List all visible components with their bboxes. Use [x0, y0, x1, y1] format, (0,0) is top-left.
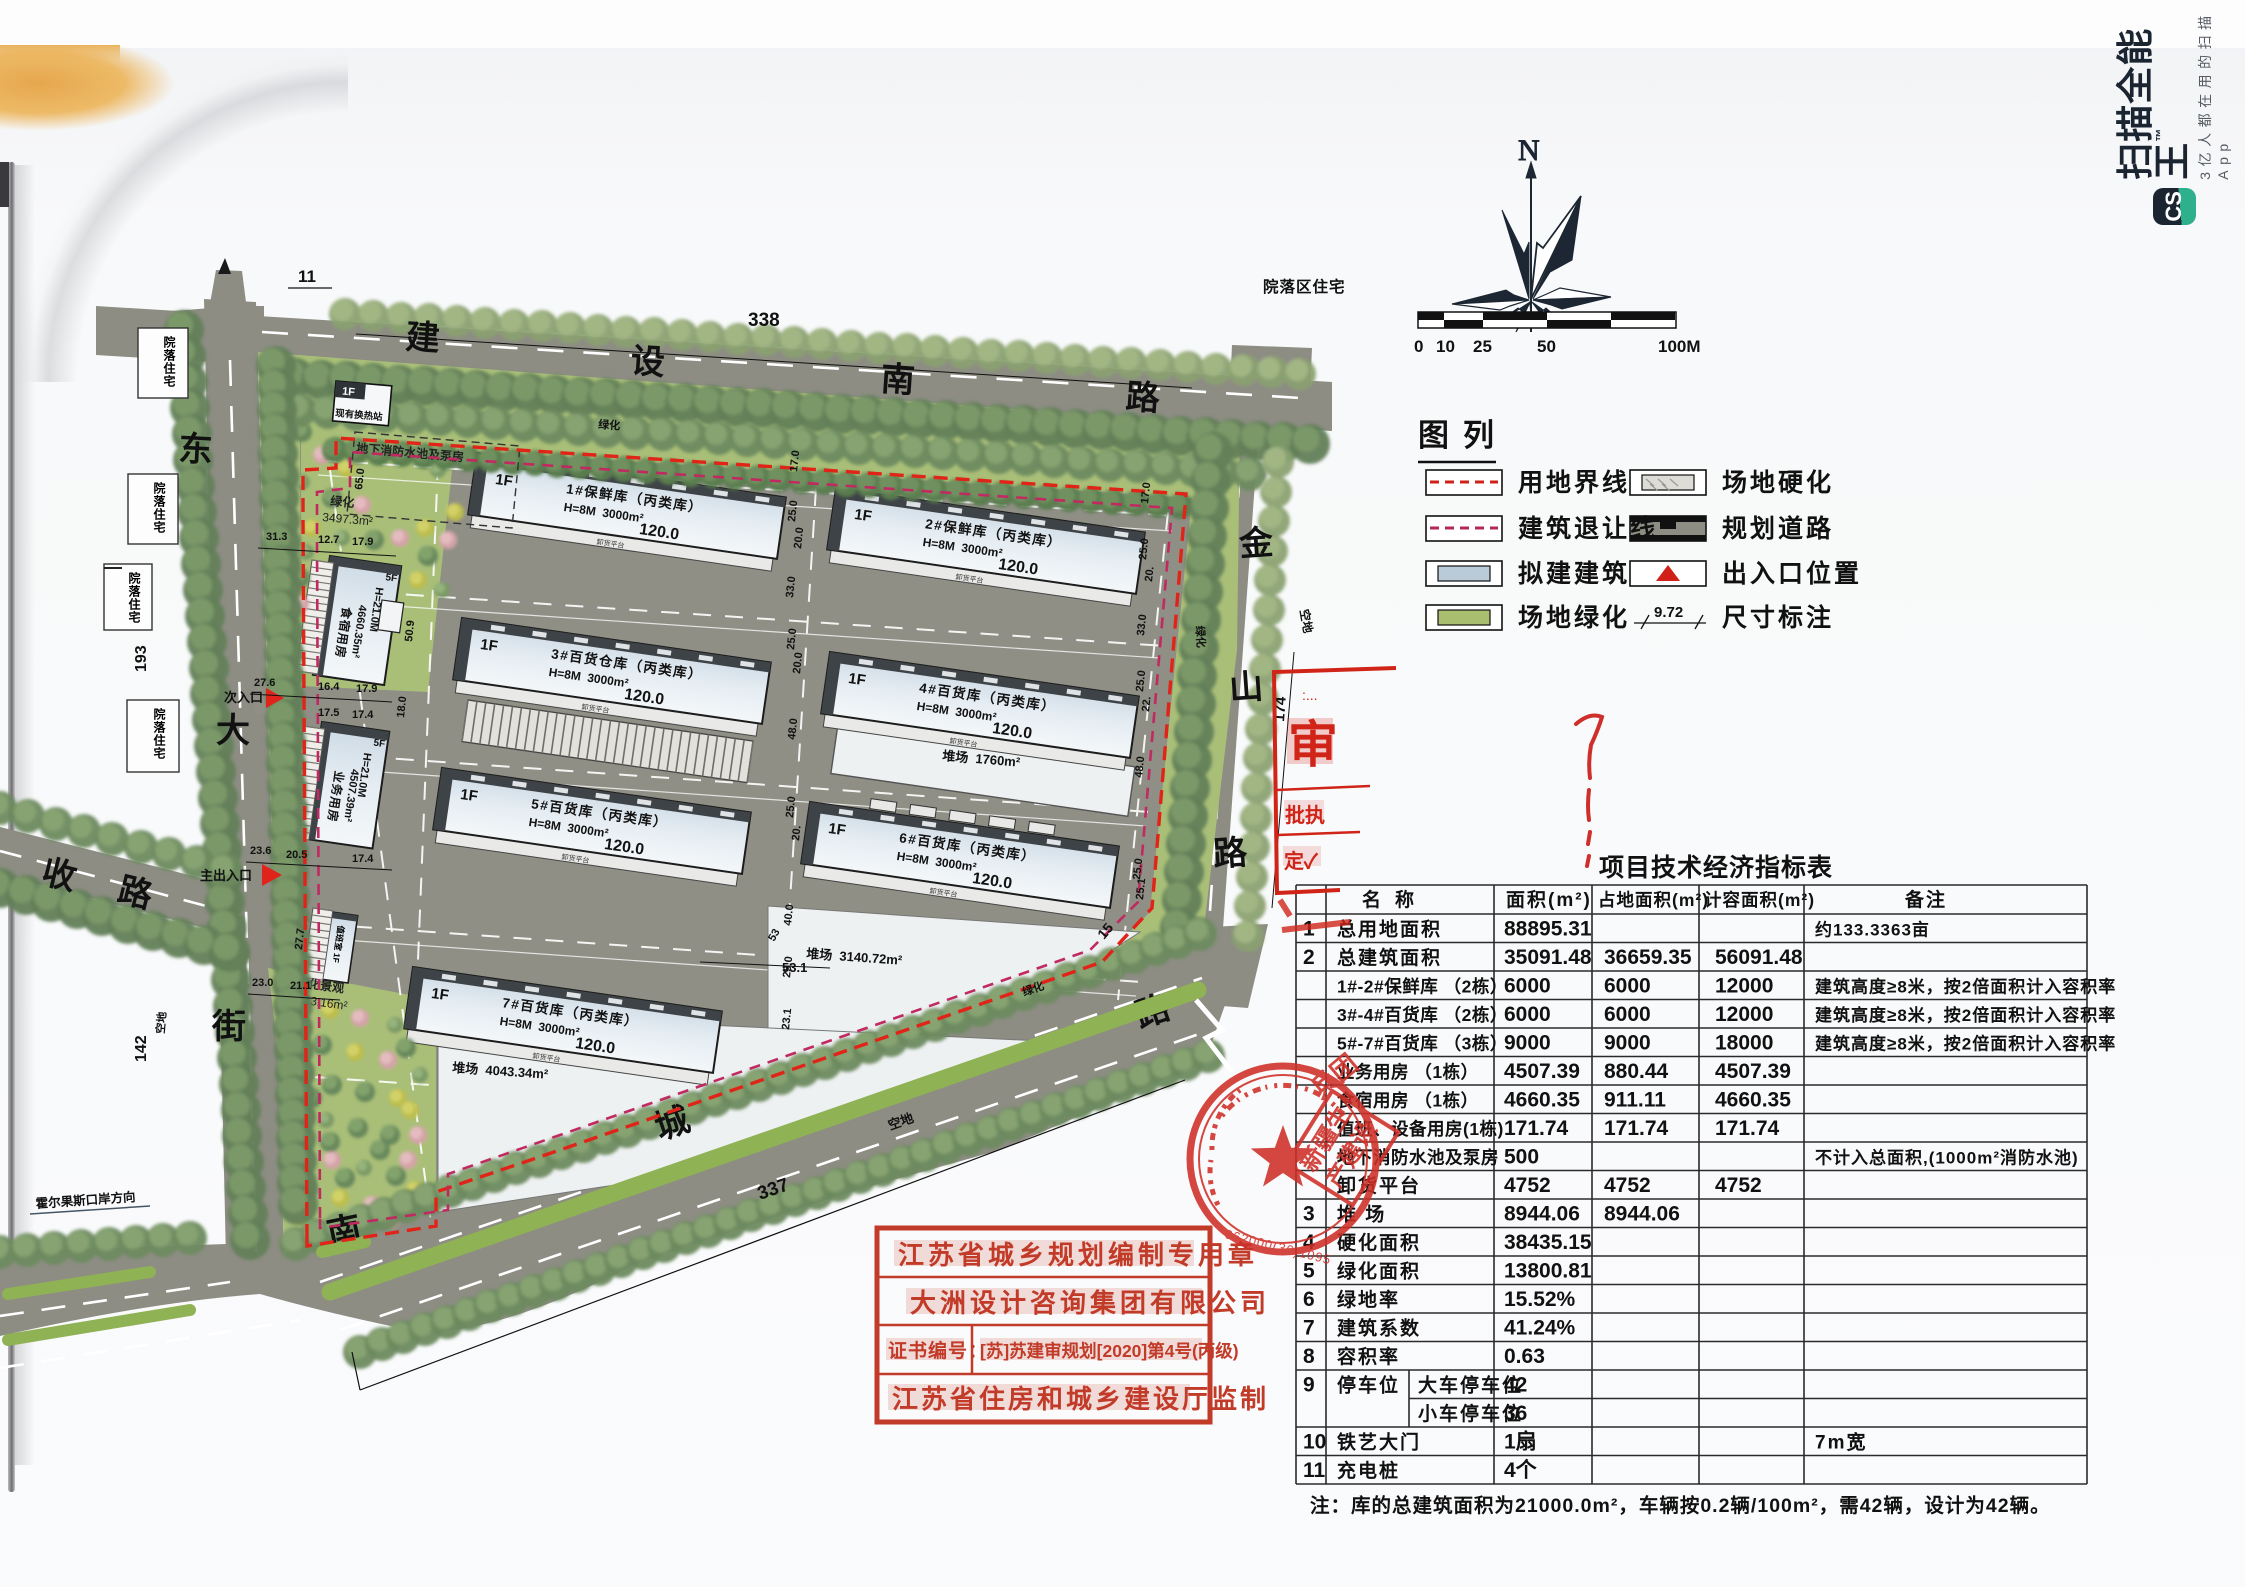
svg-text:大洲设计咨询集团有限公司: 大洲设计咨询集团有限公司 — [910, 1288, 1270, 1318]
svg-text:江苏省住房和城乡建设厅监制: 江苏省住房和城乡建设厅监制 — [892, 1384, 1269, 1414]
svg-text:批执: 批执 — [1285, 803, 1325, 827]
svg-text:定✓: 定✓ — [1284, 849, 1319, 873]
svg-text:证书编号：: 证书编号： — [888, 1339, 988, 1362]
svg-text:审: 审 — [1288, 717, 1338, 773]
svg-text:[苏]苏建审规划[2020]第4号(丙级): [苏]苏建审规划[2020]第4号(丙级) — [980, 1341, 1239, 1361]
svg-text:江苏省城乡规划编制专用章: 江苏省城乡规划编制专用章 — [898, 1240, 1258, 1270]
svg-text::...: :... — [1302, 687, 1318, 703]
